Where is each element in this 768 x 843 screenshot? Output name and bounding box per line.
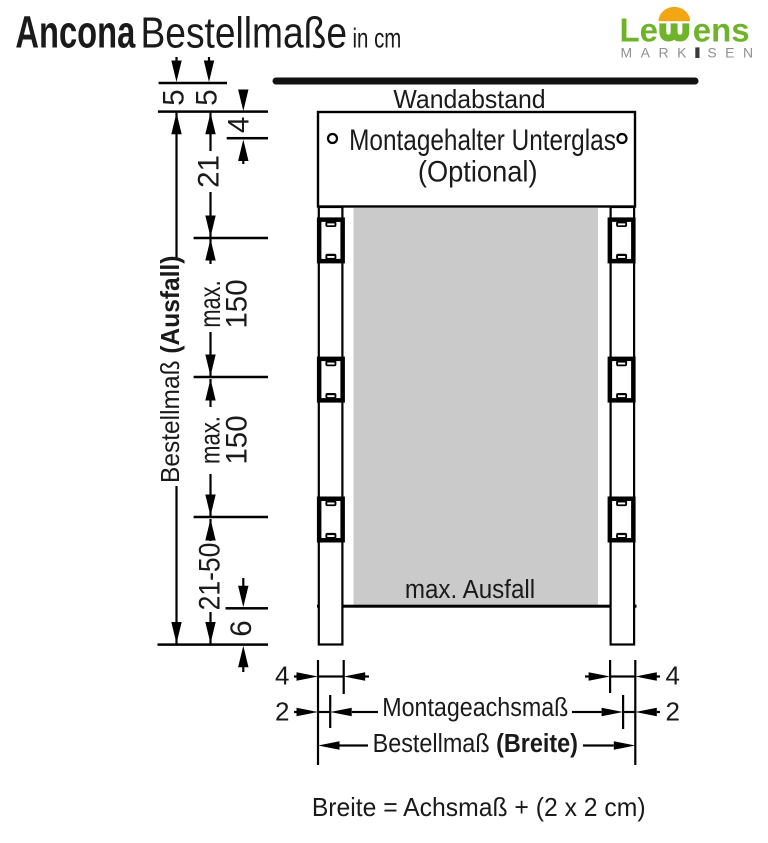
svg-text:2: 2 [666,696,680,726]
svg-text:21: 21 [193,155,226,188]
svg-text:Montagehalter Unterglas: Montagehalter Unterglas [349,124,616,157]
svg-text:in cm: in cm [353,24,402,55]
svg-text:150: 150 [221,279,254,328]
svg-text:150: 150 [221,415,254,464]
svg-text:MARKISEN: MARKISEN [621,45,762,61]
svg-text:5: 5 [158,89,191,105]
svg-text:4: 4 [223,117,256,133]
svg-text:ens: ens [693,12,750,49]
svg-text:Bestellmaß (Ausfall): Bestellmaß (Ausfall) [156,256,185,483]
svg-text:Bestellmaße: Bestellmaße [141,8,348,58]
svg-text:21-50: 21-50 [193,543,226,611]
svg-text:5: 5 [190,89,223,105]
svg-text:4: 4 [666,660,680,690]
svg-text:Wandabstand: Wandabstand [393,85,545,114]
svg-text:Montageachsmaß: Montageachsmaß [382,694,568,722]
svg-text:max. Ausfall: max. Ausfall [405,575,535,604]
svg-text:(Optional): (Optional) [418,155,538,188]
svg-text:2: 2 [275,696,289,726]
svg-text:6: 6 [225,620,258,636]
svg-text:Bestellmaß (Breite): Bestellmaß (Breite) [373,730,578,758]
svg-text:4: 4 [275,660,289,690]
svg-text:Ancona: Ancona [15,7,136,57]
svg-text:Breite = Achsmaß + (2 x 2 cm): Breite = Achsmaß + (2 x 2 cm) [312,793,646,822]
svg-text:Le: Le [620,12,659,49]
